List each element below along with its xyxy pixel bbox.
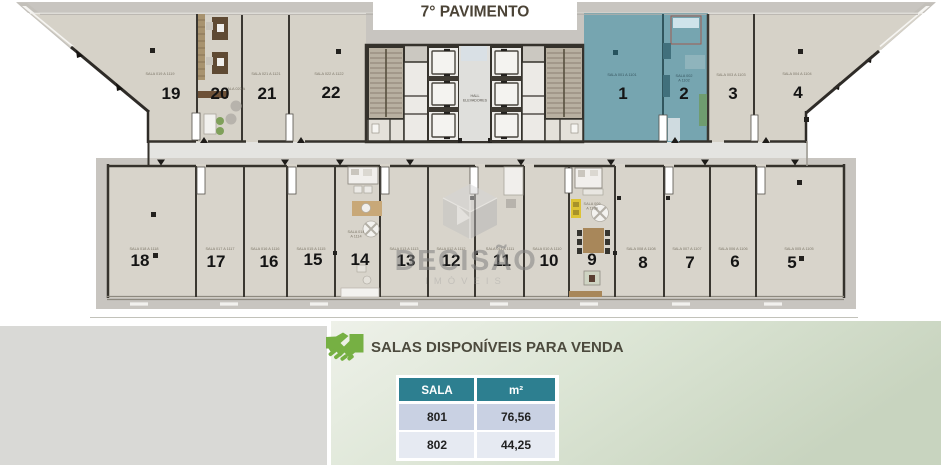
svg-text:15: 15 bbox=[304, 250, 323, 269]
svg-text:22: 22 bbox=[322, 83, 341, 102]
svg-text:A 1109: A 1109 bbox=[586, 207, 598, 211]
svg-text:SALA 003 A 1103: SALA 003 A 1103 bbox=[716, 73, 745, 77]
svg-text:19: 19 bbox=[162, 84, 181, 103]
svg-text:3: 3 bbox=[728, 84, 737, 103]
svg-text:1: 1 bbox=[618, 84, 627, 103]
svg-text:SALA: SALA bbox=[421, 385, 452, 397]
svg-text:SALAS DISPONÍVEIS PARA VENDA: SALAS DISPONÍVEIS PARA VENDA bbox=[371, 339, 624, 356]
svg-text:14: 14 bbox=[351, 250, 370, 269]
svg-text:SALA 005 A 1105: SALA 005 A 1105 bbox=[784, 247, 813, 251]
svg-text:18: 18 bbox=[131, 251, 150, 270]
svg-text:21: 21 bbox=[258, 84, 277, 103]
svg-text:SALA 002: SALA 002 bbox=[676, 74, 693, 78]
svg-text:SALA 001 A 1101: SALA 001 A 1101 bbox=[607, 73, 636, 77]
svg-text:44,25: 44,25 bbox=[501, 438, 531, 452]
svg-text:m²: m² bbox=[509, 385, 523, 397]
svg-text:76,56: 76,56 bbox=[501, 410, 531, 424]
svg-text:SALA 022 A 1122: SALA 022 A 1122 bbox=[314, 72, 343, 76]
svg-text:7° PAVIMENTO: 7° PAVIMENTO bbox=[421, 4, 530, 21]
svg-text:4: 4 bbox=[793, 83, 803, 102]
svg-text:9: 9 bbox=[587, 250, 596, 269]
svg-text:SALA 008 A 1108: SALA 008 A 1108 bbox=[626, 247, 655, 251]
svg-text:ELEVADORES: ELEVADORES bbox=[463, 99, 488, 103]
svg-text:16: 16 bbox=[260, 252, 279, 271]
svg-text:SALA 016 A 1116: SALA 016 A 1116 bbox=[251, 247, 280, 251]
svg-text:20: 20 bbox=[211, 84, 230, 103]
svg-text:A 1102: A 1102 bbox=[678, 79, 690, 83]
svg-text:SALA 006 A 1106: SALA 006 A 1106 bbox=[718, 247, 747, 251]
svg-text:IMÓVEIS: IMÓVEIS bbox=[425, 276, 507, 287]
svg-text:SALA 009: SALA 009 bbox=[584, 202, 601, 206]
svg-text:SALA 004 A 1104: SALA 004 A 1104 bbox=[782, 72, 811, 76]
svg-text:SALA 019 A 1119: SALA 019 A 1119 bbox=[146, 72, 175, 76]
svg-text:SALA 017 A 1117: SALA 017 A 1117 bbox=[206, 247, 235, 251]
svg-text:10: 10 bbox=[540, 251, 559, 270]
svg-text:2: 2 bbox=[679, 84, 688, 103]
svg-text:SALA 021 A 1121: SALA 021 A 1121 bbox=[251, 72, 280, 76]
svg-text:8: 8 bbox=[638, 253, 647, 272]
svg-text:HALL: HALL bbox=[471, 94, 480, 98]
svg-text:6: 6 bbox=[730, 252, 739, 271]
svg-text:DECISÃO: DECISÃO bbox=[395, 243, 538, 277]
svg-text:A 1114: A 1114 bbox=[350, 235, 361, 239]
svg-text:802: 802 bbox=[427, 438, 447, 452]
svg-text:SALA 014: SALA 014 bbox=[348, 230, 365, 234]
svg-text:17: 17 bbox=[207, 252, 226, 271]
svg-text:7: 7 bbox=[685, 253, 694, 272]
svg-text:5: 5 bbox=[787, 253, 796, 272]
svg-text:SALA 007 A 1107: SALA 007 A 1107 bbox=[672, 247, 701, 251]
svg-text:801: 801 bbox=[427, 410, 447, 424]
